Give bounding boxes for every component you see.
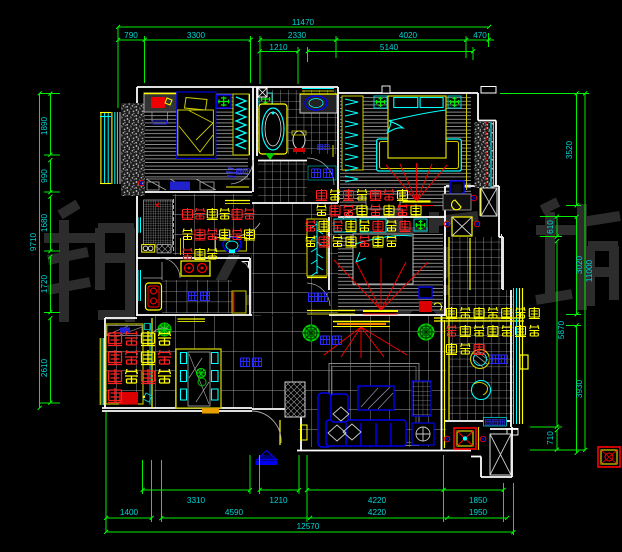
svg-text:2330: 2330 bbox=[288, 31, 307, 40]
svg-text:11470: 11470 bbox=[292, 18, 315, 27]
svg-text:790: 790 bbox=[124, 31, 138, 40]
svg-text:3930: 3930 bbox=[575, 379, 584, 398]
svg-text:610: 610 bbox=[546, 220, 555, 234]
svg-text:3310: 3310 bbox=[187, 496, 206, 505]
svg-text:3020: 3020 bbox=[575, 255, 584, 274]
svg-text:5870: 5870 bbox=[557, 320, 566, 339]
svg-text:1210: 1210 bbox=[269, 43, 288, 52]
svg-text:4590: 4590 bbox=[225, 508, 244, 517]
svg-text:3520: 3520 bbox=[565, 140, 574, 159]
svg-text:9710: 9710 bbox=[29, 232, 38, 251]
svg-text:4220: 4220 bbox=[368, 508, 387, 517]
svg-text:12570: 12570 bbox=[297, 522, 320, 531]
svg-text:11000: 11000 bbox=[585, 259, 594, 282]
svg-text:470: 470 bbox=[473, 31, 487, 40]
svg-text:710: 710 bbox=[546, 431, 555, 445]
svg-text:5140: 5140 bbox=[380, 43, 399, 52]
svg-text:1890: 1890 bbox=[40, 116, 49, 135]
svg-text:990: 990 bbox=[40, 169, 49, 183]
svg-text:2610: 2610 bbox=[40, 358, 49, 377]
svg-text:4020: 4020 bbox=[399, 31, 418, 40]
svg-text:1950: 1950 bbox=[469, 508, 488, 517]
svg-text:1400: 1400 bbox=[120, 508, 139, 517]
svg-text:3300: 3300 bbox=[187, 31, 206, 40]
svg-text:1210: 1210 bbox=[269, 496, 288, 505]
svg-text:1720: 1720 bbox=[40, 274, 49, 293]
svg-text:1680: 1680 bbox=[40, 213, 49, 232]
svg-text:1850: 1850 bbox=[469, 496, 488, 505]
svg-text:4220: 4220 bbox=[368, 496, 387, 505]
